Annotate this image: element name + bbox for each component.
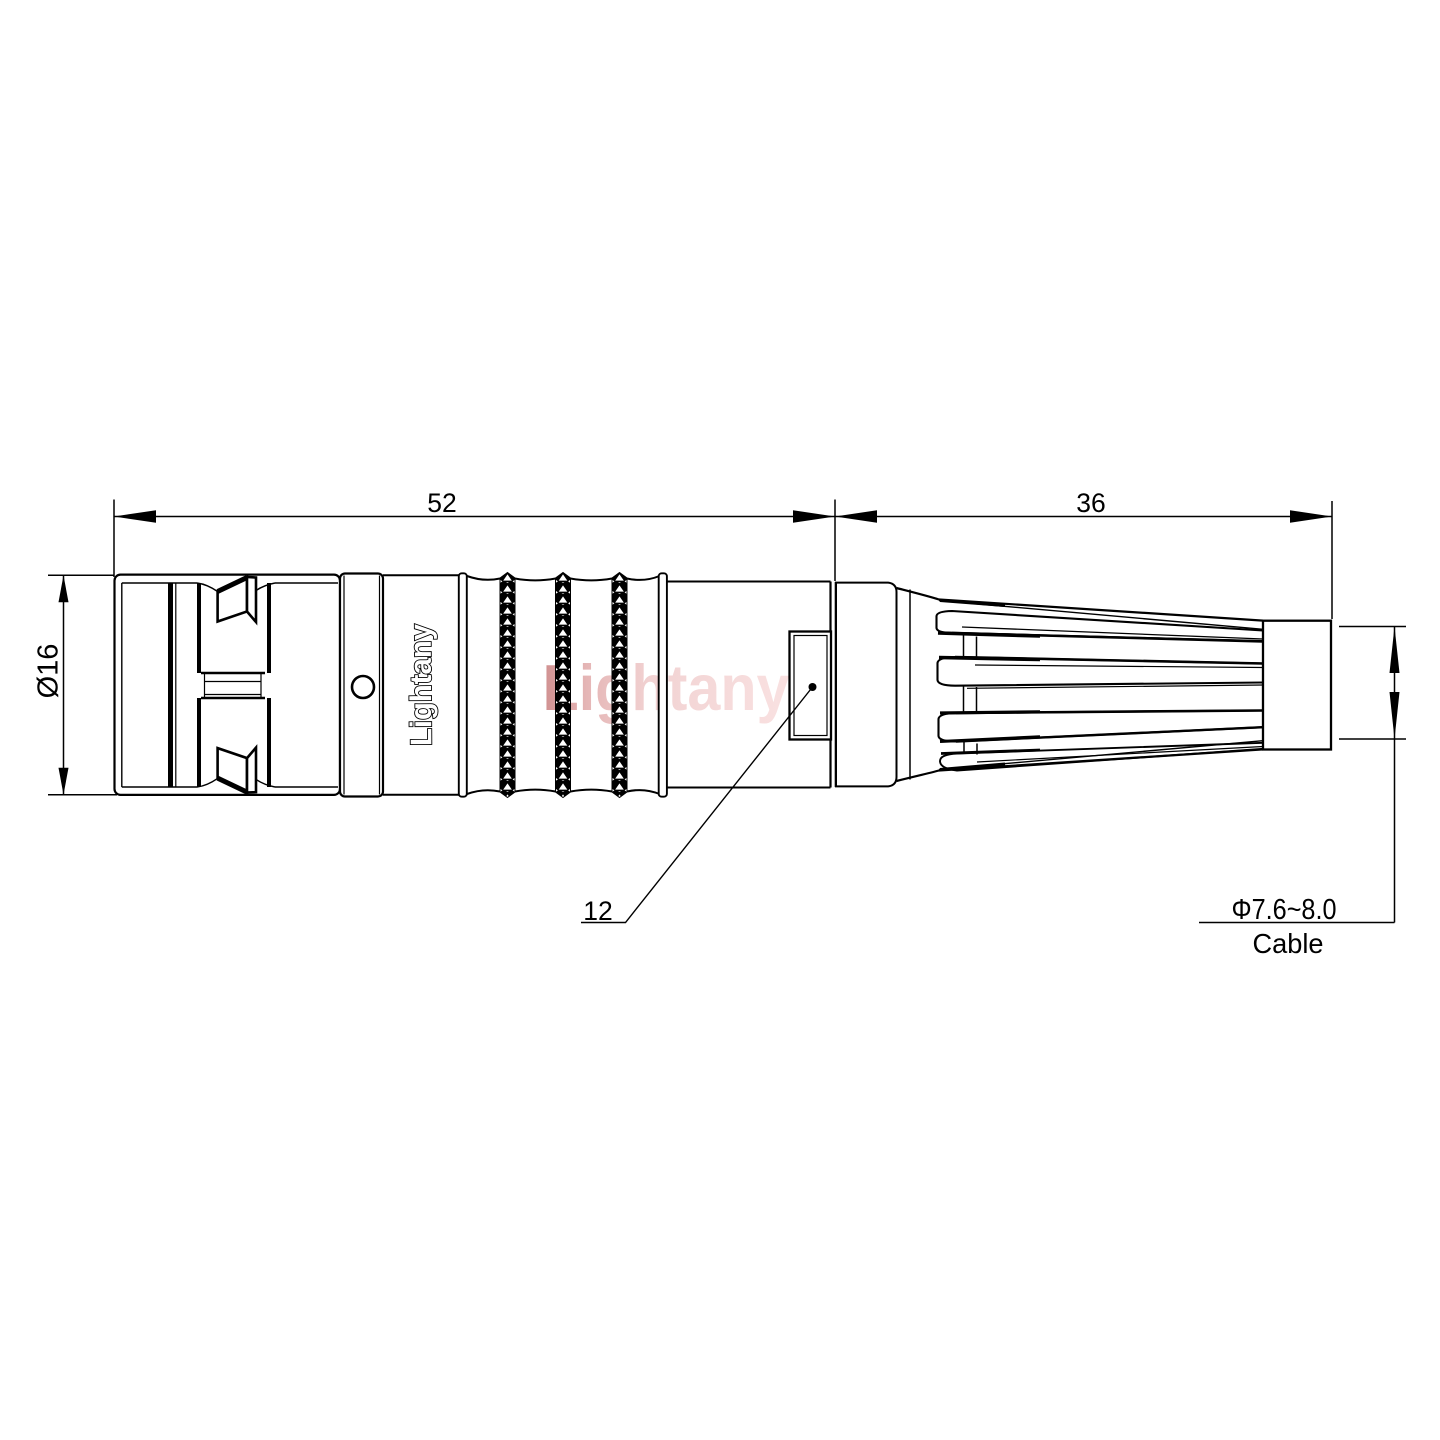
svg-text:36: 36 (1076, 488, 1105, 518)
svg-text:Lightany: Lightany (405, 624, 439, 747)
svg-text:Ø16: Ø16 (33, 644, 65, 699)
svg-text:12: 12 (583, 896, 612, 926)
svg-text:52: 52 (427, 488, 456, 518)
svg-text:Φ7.6~8.0: Φ7.6~8.0 (1232, 894, 1337, 926)
svg-text:Cable: Cable (1253, 928, 1324, 959)
